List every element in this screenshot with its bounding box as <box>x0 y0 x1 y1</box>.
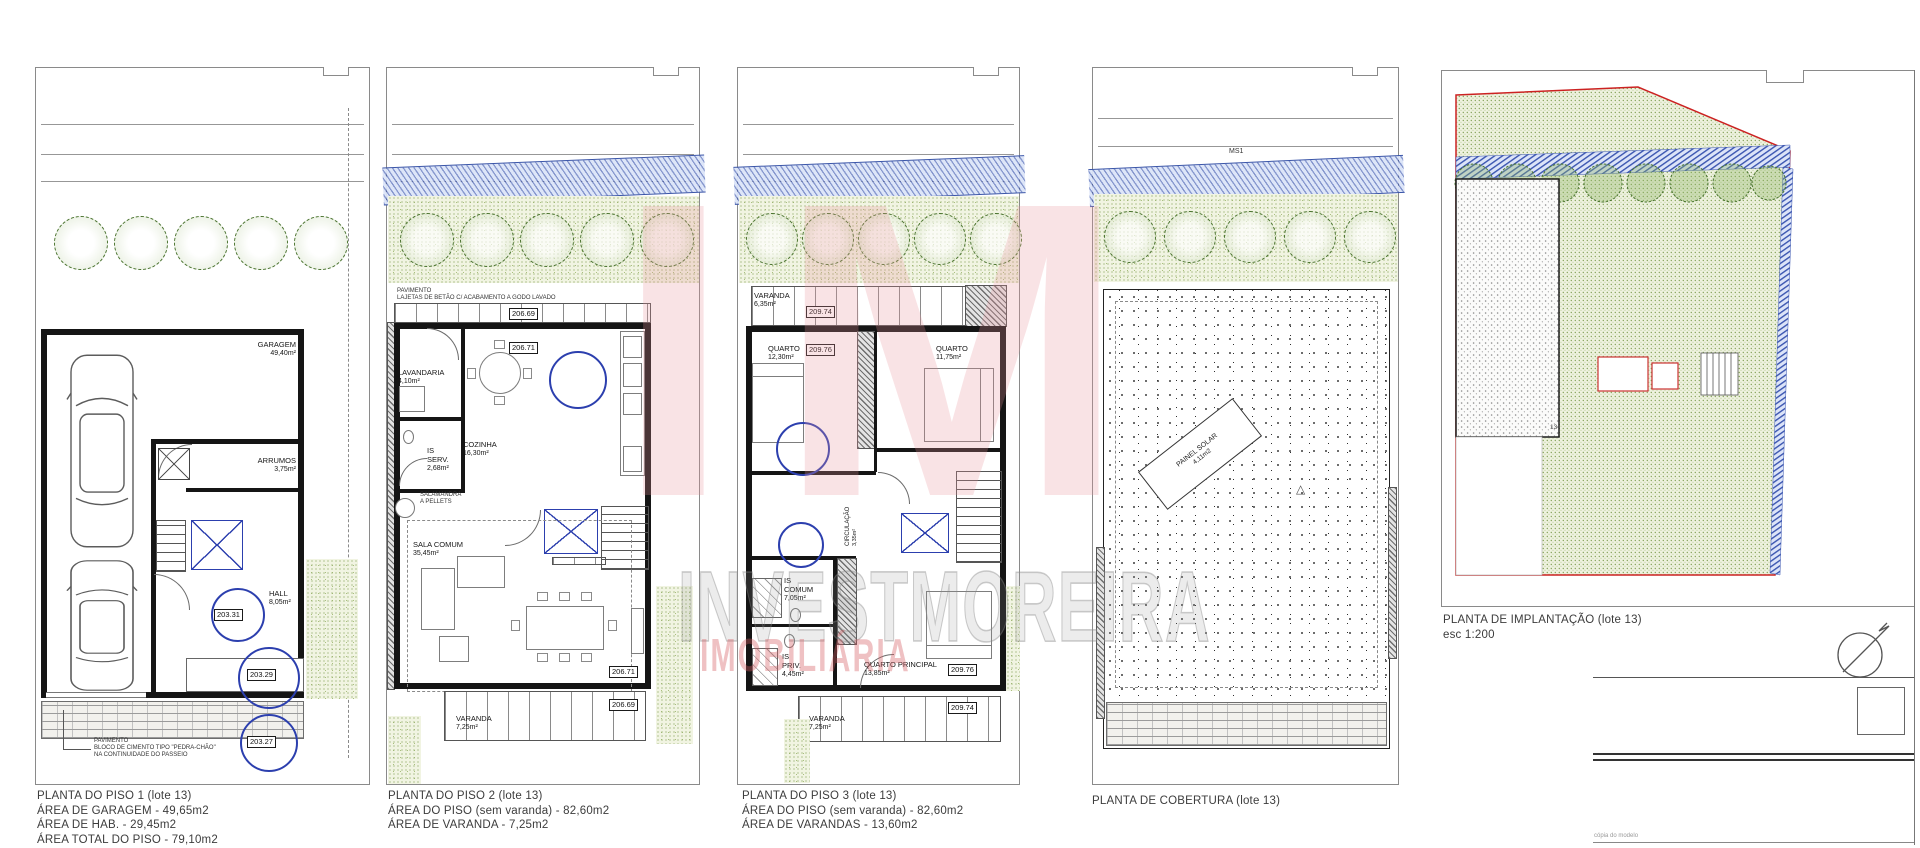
level-marker: 209.74 <box>806 306 835 318</box>
level-marker: 206.69 <box>509 308 538 320</box>
tree-icon <box>640 213 694 267</box>
tree-icon <box>234 216 288 270</box>
caption-line: ÁREA TOTAL DO PISO - 79,10m2 <box>37 833 218 848</box>
room-label-circulacao: CIRCULAÇÃO <box>845 507 852 546</box>
room-label-garagem: GARAGEM <box>231 340 296 349</box>
green-verge <box>1006 586 1020 691</box>
exterior-stairs <box>1701 353 1738 395</box>
tree-icon <box>802 213 854 265</box>
titleblock-line <box>1593 759 1915 761</box>
chair-icon <box>494 340 505 349</box>
chair-icon <box>559 653 570 662</box>
wall <box>151 439 304 444</box>
wall <box>746 624 837 627</box>
roof-slab: PAINEL SOLAR 4,11m2 △ <box>1103 289 1390 749</box>
wall <box>298 329 304 698</box>
annex-outline <box>1598 357 1648 391</box>
elevator-icon <box>901 513 949 553</box>
room-area-is-comum: 7,05m² <box>784 594 813 603</box>
chair-icon <box>581 653 592 662</box>
tree-icon <box>1713 164 1751 202</box>
road-line <box>41 124 364 125</box>
room-label-hall: HALL <box>269 589 291 598</box>
caption-title-piso2: PLANTA DO PISO 2 (lote 13) <box>388 789 609 804</box>
room-label-is-priv2: PRIV. <box>782 661 804 670</box>
room-area-varanda: 7,25m² <box>456 723 492 732</box>
shower-icon <box>752 648 778 686</box>
drawing-sheet: GARAGEM 49,40m² ARRUMOS 3,75m² HALL 8,05… <box>0 0 1920 848</box>
road-line <box>41 154 364 155</box>
caption-title-piso1: PLANTA DO PISO 1 (lote 13) <box>37 789 218 804</box>
road-label: MS1 <box>1229 148 1243 155</box>
leader-line <box>63 749 91 750</box>
appliance-icon <box>623 336 642 358</box>
room-label-lavandaria: LAVANDARIA <box>398 368 444 377</box>
car-icon <box>66 558 138 693</box>
level-marker: 209.76 <box>948 664 977 676</box>
stove-icon <box>395 498 415 518</box>
chair-icon <box>608 620 617 631</box>
paved-yard <box>1456 437 1542 575</box>
toilet-icon <box>784 634 795 648</box>
sofa-icon <box>457 556 505 588</box>
caption-line: ÁREA DE VARANDAS - 13,60m2 <box>742 818 963 833</box>
room-label-arrumos: ARRUMOS <box>244 456 296 465</box>
tree-icon <box>520 213 574 267</box>
door-arc <box>427 328 459 360</box>
floor-plan-sheet-piso3: VARANDA 6,35m² 209.74 QUARTO 12,30m² 209… <box>737 67 1020 785</box>
level-marker: 203.27 <box>247 736 276 748</box>
room-area-quarto-principal: 13,85m² <box>864 669 937 678</box>
room-area-quarto1: 12,30m² <box>768 353 800 362</box>
room-label-quarto1: QUARTO <box>768 344 800 353</box>
road-line <box>392 124 694 125</box>
washer-icon <box>399 386 425 412</box>
caption-title-cobertura: PLANTA DE COBERTURA (lote 13) <box>1092 794 1280 809</box>
coffee-table <box>439 636 469 662</box>
door-arc <box>878 472 910 504</box>
toilet-icon <box>790 608 801 622</box>
leader-line <box>63 710 64 750</box>
door-arc <box>154 574 190 610</box>
road-line <box>41 181 364 182</box>
titleblock-line <box>1593 842 1915 843</box>
room-area-serv: 2,68m² <box>427 464 449 473</box>
note-line: LAJETAS DE BETÃO C/ ACABAMENTO A GODO LA… <box>397 295 556 302</box>
tree-icon <box>1752 166 1786 200</box>
titleblock-footer: cópia do modelo <box>1594 833 1638 840</box>
plot-number: 13 <box>1550 424 1558 431</box>
room-area-circulacao: 3,35m² <box>852 507 859 546</box>
sheet-tab <box>973 67 999 76</box>
caption-title-implantacao: PLANTA DE IMPLANTAÇÃO (lote 13) <box>1443 613 1642 628</box>
wall <box>877 448 1006 452</box>
room-area-cozinha: 16,30m² <box>463 449 497 458</box>
tree-icon <box>114 216 168 270</box>
room-label-is-comum: IS <box>784 576 813 585</box>
tree-icon <box>858 213 910 265</box>
room-label-quarto2: QUARTO <box>936 344 968 353</box>
roof-dashed-outline <box>1115 301 1378 688</box>
green-verge <box>784 719 810 783</box>
level-marker: 209.76 <box>806 344 835 356</box>
car-icon <box>66 351 138 551</box>
caption-line: ÁREA DO PISO (sem varanda) - 82,60m2 <box>742 804 963 819</box>
level-marker: 203.29 <box>247 669 276 681</box>
road-line <box>743 124 1014 125</box>
wall <box>461 323 465 493</box>
green-verge <box>306 559 358 699</box>
room-area-varanda1: 6,35m² <box>754 300 790 309</box>
wall-hatched <box>1097 548 1104 718</box>
tree-icon <box>580 213 634 267</box>
road-line <box>392 154 694 155</box>
room-label-is: IS <box>427 446 449 455</box>
wall <box>394 417 465 421</box>
road-line <box>1098 146 1393 147</box>
tree-icon <box>174 216 228 270</box>
tree-icon <box>914 213 966 265</box>
level-marker: 206.71 <box>509 342 538 354</box>
chair-icon <box>537 592 548 601</box>
elevator-icon <box>191 520 243 570</box>
room-label-is-comum2: COMUM <box>784 585 813 594</box>
closet <box>858 332 874 448</box>
room-label-sala: SALA COMUM <box>413 540 463 549</box>
chair-icon <box>523 368 532 379</box>
room-area-arrumos: 3,75m² <box>244 465 296 474</box>
tree-icon <box>1104 211 1156 263</box>
survey-circle <box>776 422 830 476</box>
room-area-varanda2: 7,25m² <box>809 723 845 732</box>
sheet-edge-line <box>1914 70 1915 845</box>
caption-line: ÁREA DE GARAGEM - 49,65m2 <box>37 804 218 819</box>
caption-line: ÁREA DE HAB. - 29,45m2 <box>37 818 218 833</box>
bed-pillow <box>926 645 992 659</box>
north-arrow-icon <box>1833 622 1895 684</box>
floor-plan-sheet-piso1: GARAGEM 49,40m² ARRUMOS 3,75m² HALL 8,05… <box>35 67 370 785</box>
wall-hatched <box>1389 488 1396 658</box>
roof-edge-band <box>1106 702 1387 746</box>
note-line: A PELLETS <box>420 499 461 506</box>
site-plan-drawing: 13 <box>1442 71 1916 608</box>
stairs <box>956 471 1002 563</box>
level-marker: 209.74 <box>948 702 977 714</box>
tree-icon <box>1344 211 1396 263</box>
sheet-tab <box>1352 67 1378 76</box>
room-label-serv: SERV. <box>427 455 449 464</box>
room-area-quarto2: 11,75m² <box>936 353 968 362</box>
note-line: BLOCO DE CIMENTO TIPO "PEDRA-CHÃO" <box>94 745 216 752</box>
sheet-tab <box>323 67 349 76</box>
stairs <box>156 520 186 572</box>
dining-table <box>526 606 604 650</box>
chair-icon <box>511 620 520 631</box>
wall-hatched <box>966 286 1006 326</box>
level-marker: 206.71 <box>609 666 638 678</box>
house-footprint <box>1456 179 1559 437</box>
closet <box>838 559 856 644</box>
room-label-varanda1: VARANDA <box>754 291 790 300</box>
chair-icon <box>581 592 592 601</box>
tree-icon <box>294 216 348 270</box>
appliance-icon <box>623 393 642 415</box>
tree-icon <box>1627 164 1665 202</box>
shaft-icon <box>158 448 190 480</box>
road-line <box>743 154 1014 155</box>
tree-icon <box>400 213 454 267</box>
room-label-varanda: VARANDA <box>456 714 492 723</box>
caption-scale: esc 1:200 <box>1443 628 1642 643</box>
chair-icon <box>467 368 476 379</box>
sofa-icon <box>421 568 455 630</box>
survey-circle <box>778 522 824 568</box>
tree-icon <box>460 213 514 267</box>
room-area-is-priv: 4,45m² <box>782 670 804 679</box>
shower-icon <box>752 578 782 618</box>
caption-title-piso3: PLANTA DO PISO 3 (lote 13) <box>742 789 963 804</box>
note-line: SALAMANDRA <box>420 492 461 499</box>
tree-icon <box>1584 164 1622 202</box>
chair-icon <box>559 592 570 601</box>
room-label-is-priv: IS <box>782 652 804 661</box>
roof-plan-sheet: MS1 PAINEL SOLAR 4,11m2 △ <box>1092 67 1399 785</box>
sheet-tab <box>653 67 679 76</box>
titleblock-line <box>1593 677 1915 678</box>
wall <box>41 329 47 698</box>
caption-line: ÁREA DO PISO (sem varanda) - 82,60m2 <box>388 804 609 819</box>
tree-icon <box>54 216 108 270</box>
tree-icon <box>1164 211 1216 263</box>
tree-icon <box>1670 164 1708 202</box>
bed-pillow <box>980 368 994 442</box>
appliance-icon <box>623 363 642 387</box>
wall <box>41 329 304 335</box>
chair-icon <box>537 653 548 662</box>
wall <box>186 488 304 492</box>
site-plan-sheet: 13 <box>1441 70 1915 607</box>
caption-line: ÁREA DE VARANDA - 7,25m2 <box>388 818 609 833</box>
sink-icon <box>623 446 642 472</box>
chair-icon <box>494 396 505 405</box>
room-label-cozinha: COZINHA <box>463 440 497 449</box>
room-label-varanda2: VARANDA <box>809 714 845 723</box>
survey-circle <box>549 351 607 409</box>
note-line: NA CONTINUIDADE DO PASSEIO <box>94 752 216 759</box>
toilet-icon <box>403 430 414 444</box>
tree-icon <box>1284 211 1336 263</box>
room-label-quarto-principal: QUARTO PRINCIPAL <box>864 660 937 669</box>
room-area-sala: 35,45m² <box>413 549 463 558</box>
tree-icon <box>1224 211 1276 263</box>
tree-icon <box>746 213 798 265</box>
room-area-garagem: 49,40m² <box>231 349 296 358</box>
tree-icon <box>970 213 1022 265</box>
titleblock-line <box>1593 753 1915 755</box>
green-verge <box>656 586 693 744</box>
titleblock-box <box>1857 687 1905 735</box>
level-marker: 203.31 <box>214 609 243 621</box>
room-area-hall: 8,05m² <box>269 598 291 607</box>
tv-cabinet <box>631 608 644 654</box>
bed-pillow <box>752 363 804 377</box>
door-arc <box>399 458 427 486</box>
level-marker: 206.69 <box>609 699 638 711</box>
round-table <box>479 352 521 394</box>
room-area-lavandaria: 4,10m² <box>398 377 444 386</box>
floor-plan-sheet-piso2: PAVIMENTO LAJETAS DE BETÃO C/ ACABAMENTO… <box>386 67 700 785</box>
road-line <box>1098 118 1393 119</box>
roof-vent-icon: △ <box>1296 482 1305 496</box>
annex-outline <box>1652 363 1678 389</box>
green-verge <box>388 716 421 784</box>
